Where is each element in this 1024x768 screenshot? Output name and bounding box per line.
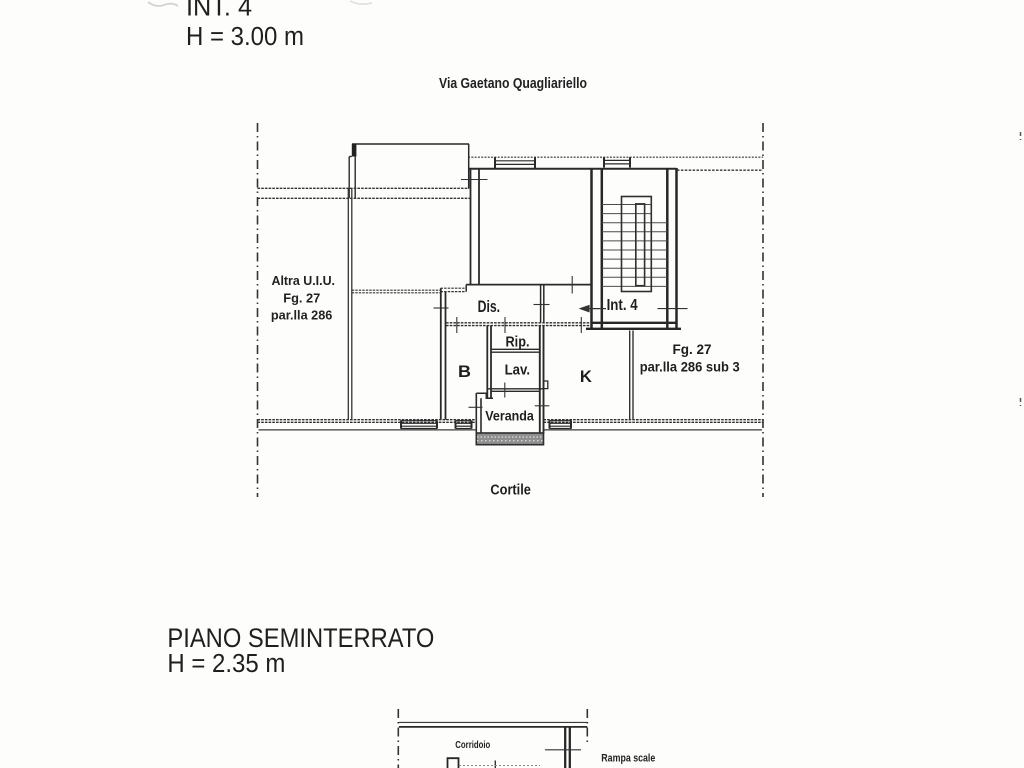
svg-text:Corridoio: Corridoio [455,739,490,751]
svg-text:par.lla 286: par.lla 286 [271,308,333,323]
svg-text:Int. 4: Int. 4 [607,297,638,314]
svg-text:Rampa scale: Rampa scale [601,753,655,765]
svg-text:Altra U.I.U.: Altra U.I.U. [272,273,336,288]
svg-text:H = 3.00 m: H = 3.00 m [186,23,304,51]
svg-text:Rip.: Rip. [506,333,530,350]
svg-text:Fg. 27: Fg. 27 [283,290,320,305]
svg-text:K: K [580,368,592,386]
svg-text:Cortile: Cortile [490,483,531,499]
svg-text:Via Gaetano Quagliariello: Via Gaetano Quagliariello [439,76,587,92]
svg-text:Fg. 27: Fg. 27 [673,341,712,357]
svg-text:Lav.: Lav. [505,361,530,378]
svg-text:par.lla 286 sub 3: par.lla 286 sub 3 [640,358,740,374]
svg-text:INT. 4: INT. 4 [186,0,252,22]
svg-text:Dis.: Dis. [478,298,501,316]
svg-text:B: B [458,363,471,381]
svg-text:Veranda: Veranda [485,409,534,424]
svg-text:H = 2.35 m: H = 2.35 m [167,650,285,678]
svg-text:PIANO SEMINTERRATO: PIANO SEMINTERRATO [167,623,434,653]
